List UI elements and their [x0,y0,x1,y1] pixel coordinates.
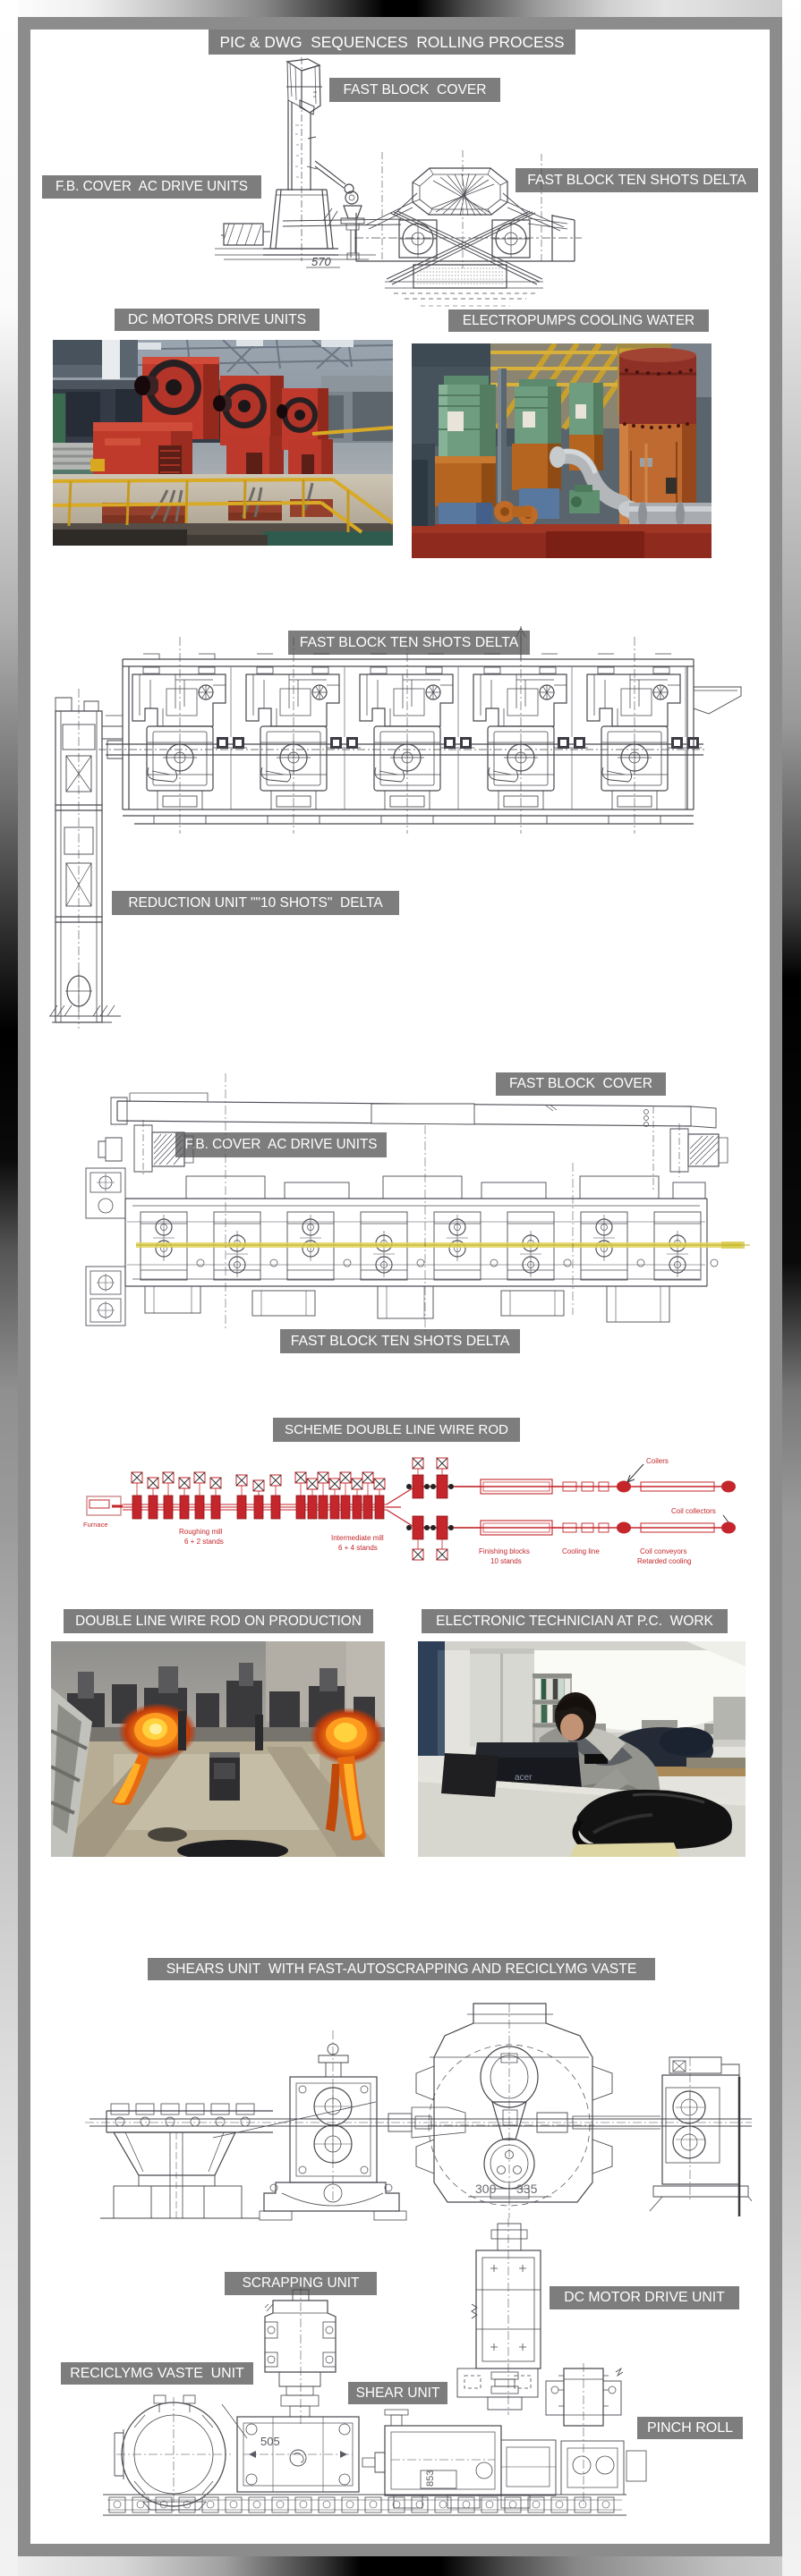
svg-text:570: 570 [311,255,331,268]
svg-text:853: 853 [425,2470,436,2487]
svg-text:Coil collectors: Coil collectors [671,1507,716,1515]
svg-text:Finishing blocks: Finishing blocks [479,1547,530,1555]
svg-text:505: 505 [260,2435,280,2448]
svg-text:Furnace: Furnace [83,1521,108,1529]
svg-text:Coilers: Coilers [646,1457,669,1465]
svg-text:Roughing mill: Roughing mill [179,1528,223,1536]
svg-text:6 + 2 stands: 6 + 2 stands [184,1538,224,1546]
svg-text:6 + 4 stands: 6 + 4 stands [338,1544,378,1552]
svg-text:Coil conveyors: Coil conveyors [640,1547,686,1555]
svg-text:335: 335 [516,2182,538,2196]
svg-text:10 stands: 10 stands [490,1557,522,1565]
svg-text:Intermediate mill: Intermediate mill [331,1534,384,1542]
svg-text:Cooling line: Cooling line [562,1547,600,1555]
svg-text:300: 300 [475,2182,497,2196]
svg-text:acer: acer [515,1773,533,1783]
svg-text:Retarded cooling: Retarded cooling [637,1557,691,1565]
